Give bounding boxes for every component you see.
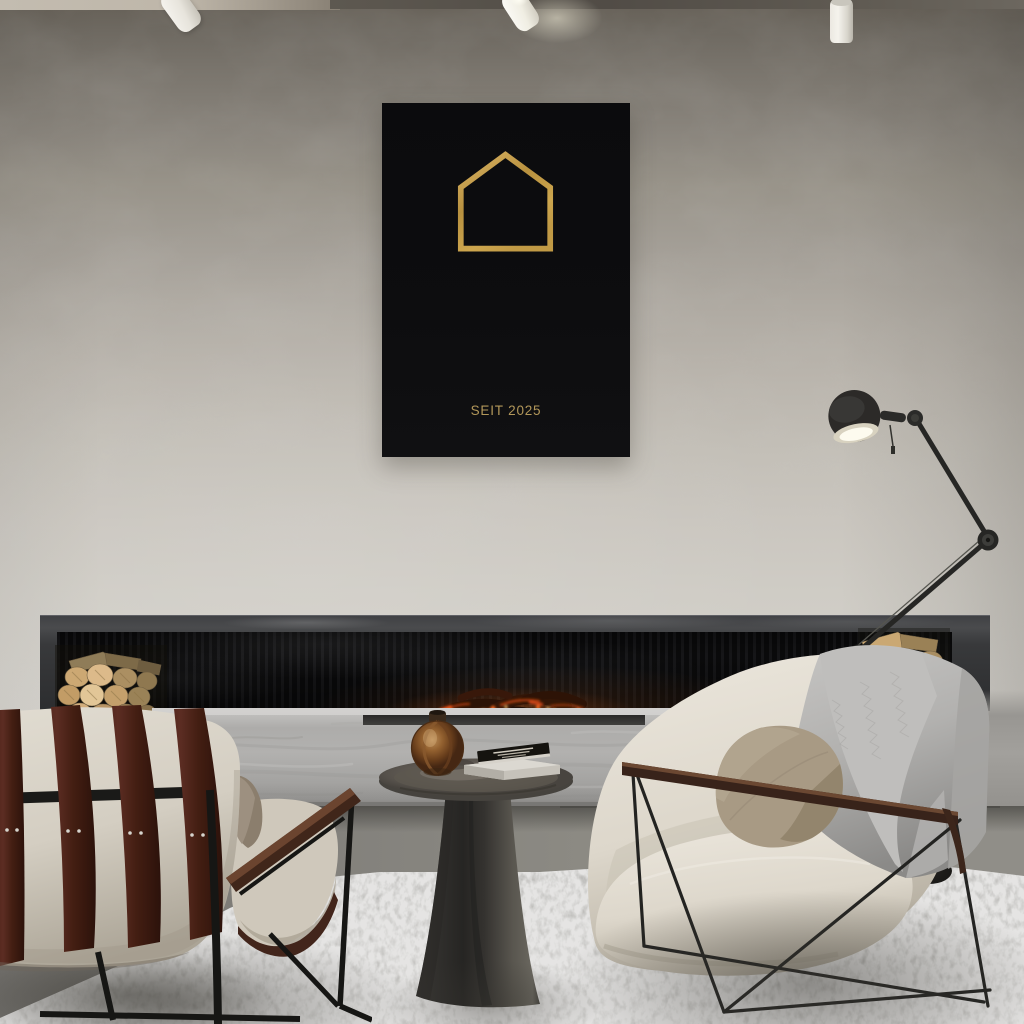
svg-text:SEIT 2025: SEIT 2025 <box>471 403 542 418</box>
